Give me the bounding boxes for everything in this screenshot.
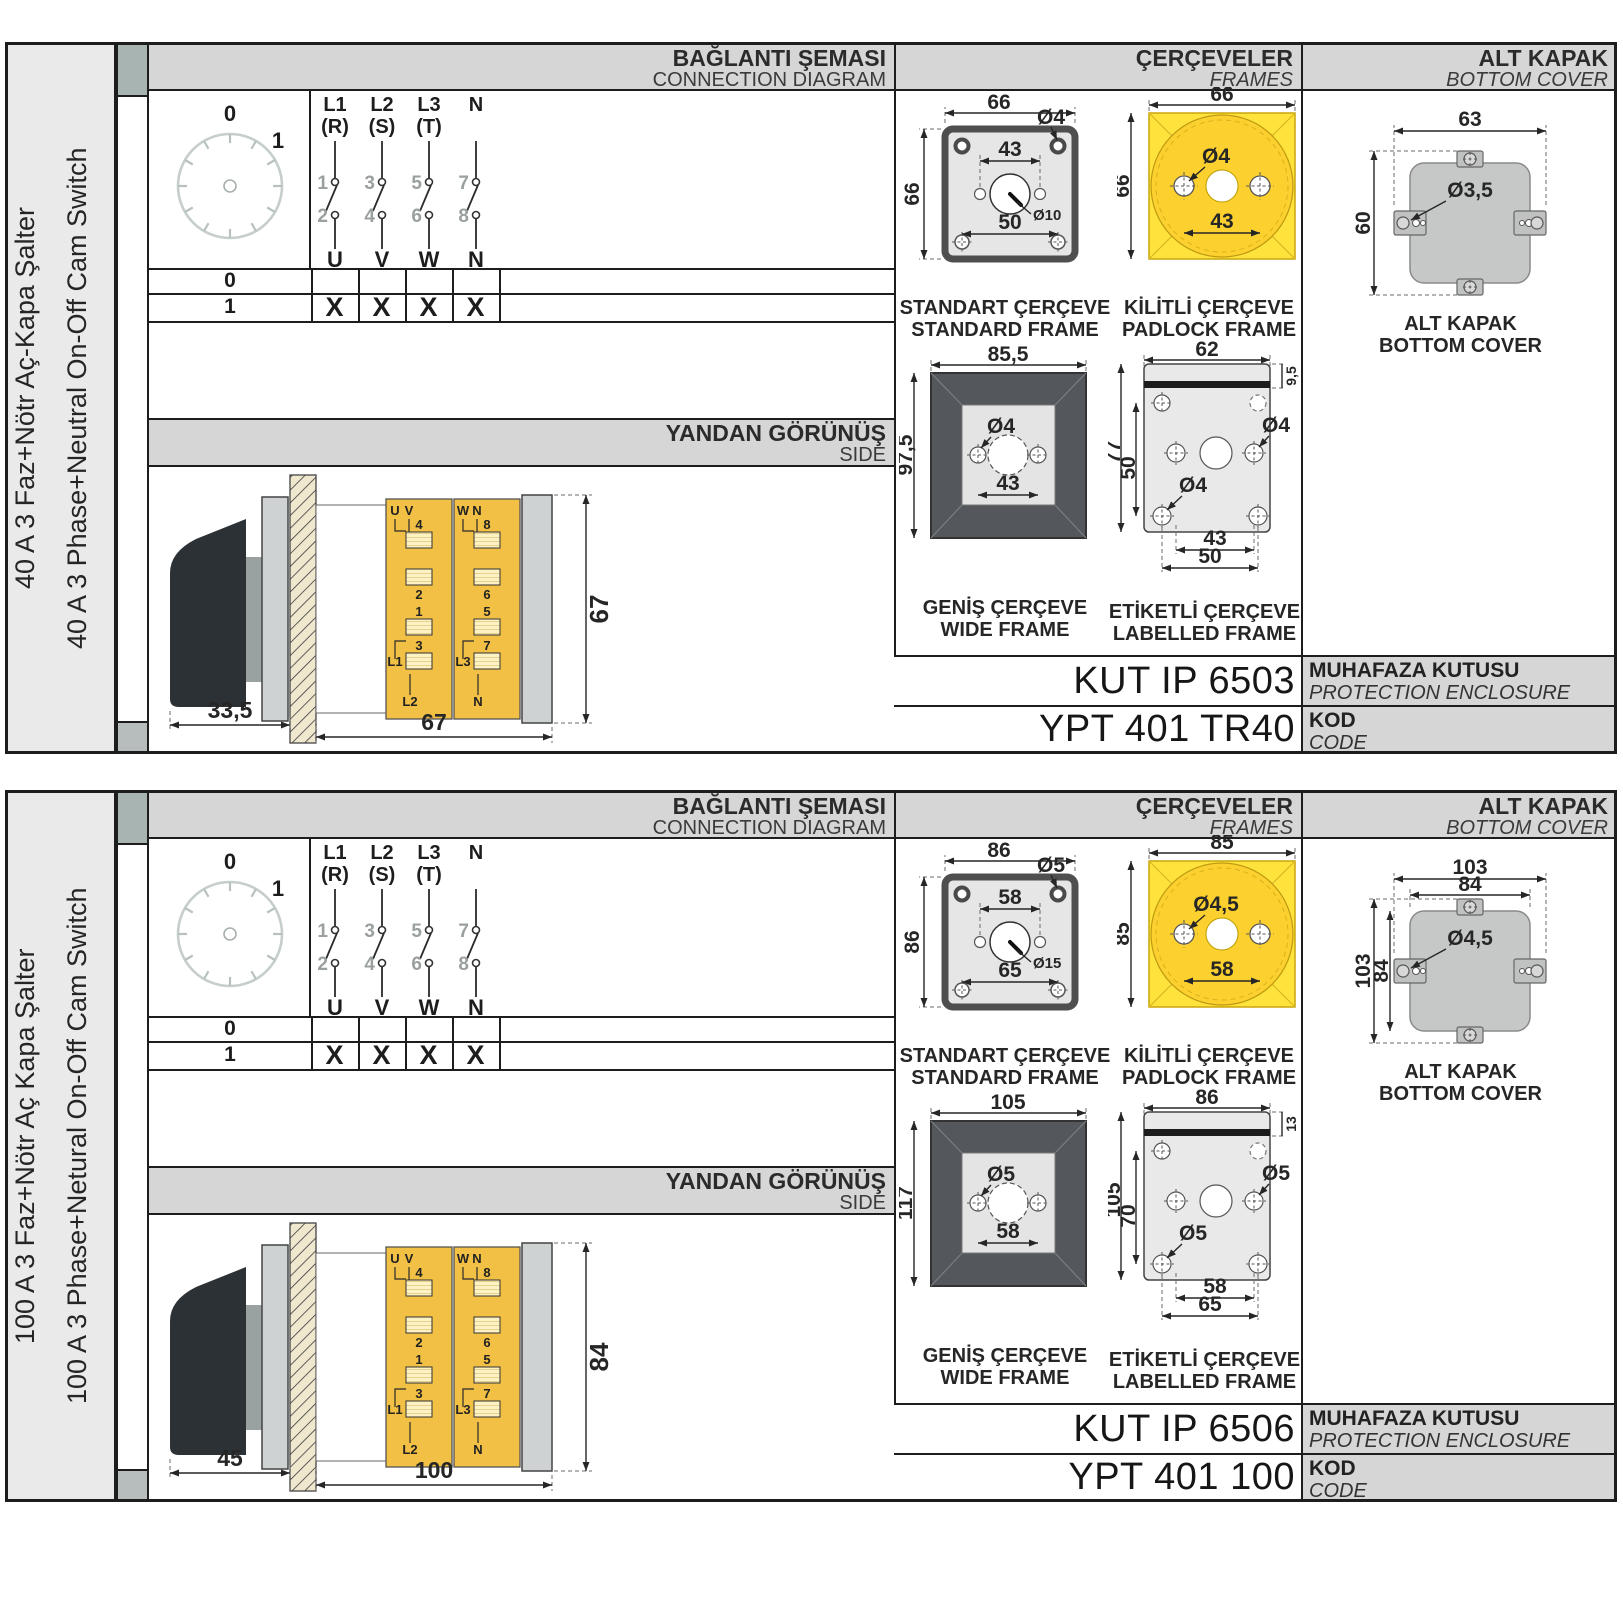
dim-label: 63: [1458, 108, 1481, 131]
section-header-cover: ALT KAPAK BOTTOM COVER: [1301, 45, 1616, 91]
caption-tr: STANDART ÇERÇEVE: [899, 1045, 1111, 1067]
terminal-number: 1: [415, 1352, 422, 1367]
terminal-label: U: [390, 1251, 399, 1266]
terminal-label: V: [405, 503, 414, 518]
section-header-connection: BAĞLANTI ŞEMASI CONNECTION DIAGRAM: [149, 45, 894, 91]
subsection-header-side: YANDAN GÖRÜNÜŞ SIDE: [149, 1166, 894, 1215]
dim-label: 84: [1370, 959, 1393, 983]
pole-L2: L2 (S) 3 4 V: [364, 842, 395, 1016]
mounting-plate: [262, 1245, 288, 1469]
pole-L3: L3 (T) 5 6 W: [411, 94, 441, 268]
dial-box: 0 1: [149, 839, 311, 1016]
terminal-number: 8: [458, 206, 469, 227]
label-en: PROTECTION ENCLOSURE: [1309, 1430, 1616, 1452]
center-hole: [1200, 1185, 1232, 1217]
dim-label: Ø5: [1262, 1162, 1290, 1185]
wide-frame-caption: GENİŞ ÇERÇEVE WIDE FRAME: [899, 597, 1111, 641]
product-code-value: YPT 401 TR40: [894, 705, 1301, 751]
terminal-label: W: [457, 1251, 470, 1266]
panel-plate-hatched: [290, 475, 316, 743]
caption-tr: ALT KAPAK: [1318, 313, 1603, 335]
table-mark: [311, 1016, 358, 1041]
table-mark: [405, 1016, 452, 1041]
pole-phase-label: (S): [369, 864, 396, 886]
terminal-number: 3: [364, 173, 375, 194]
dimension-left-outer: 105: [1108, 1112, 1125, 1280]
side-view-drawing: U V 4 2 1 3 L1 L2 W N 8 6 5 7: [158, 469, 738, 749]
header-cover-en: BOTTOM COVER: [1303, 818, 1608, 838]
center-hole: [1206, 918, 1238, 950]
caption-tr: ETİKETLİ ÇERÇEVE: [1108, 1349, 1301, 1371]
table-mark: [452, 1016, 499, 1041]
dim-label: 105: [990, 1093, 1025, 1114]
table-line: [499, 268, 501, 321]
terminal-label: L2: [402, 694, 417, 709]
dim-label: Ø4: [1037, 106, 1065, 129]
dimension-hole-top: Ø5: [1259, 1162, 1290, 1195]
cover-tab-right: [1514, 959, 1546, 983]
switch-body: U V 4 2 1 3 L1 L2 W N 8 6 5 7: [386, 499, 520, 719]
dim-label: Ø4: [987, 415, 1015, 438]
label-tr: MUHAFAZA KUTUSU: [1309, 659, 1616, 682]
product-panel: 100 A 3 Faz+Nötr Aç Kapa Şalter 100 A 3 …: [5, 790, 1617, 1502]
labelled-frame-drawing: 86 13 105 70 Ø5 Ø5 58: [1108, 1088, 1301, 1346]
side-hole: [975, 189, 986, 200]
pole-line-label: N: [469, 94, 483, 116]
dimension-height: 84: [554, 1243, 614, 1471]
standard-frame-drawing: 66 Ø4 66 43 Ø10 50: [899, 93, 1111, 295]
position-dial-drawing: 0 1: [149, 839, 309, 1014]
column-divider: [894, 91, 896, 751]
dial-ring: [178, 882, 282, 986]
enclosure-code-label: MUHAFAZA KUTUSU PROTECTION ENCLOSURE: [1301, 1403, 1616, 1453]
section-header-frames: ÇERÇEVELER FRAMES: [894, 45, 1301, 91]
table-mark: X: [358, 293, 405, 321]
bottom-cover-drawing: 63 60 Ø3,5: [1318, 105, 1603, 310]
header-connection-tr: BAĞLANTI ŞEMASI: [149, 47, 886, 70]
side-view-drawing: U V 4 2 1 3 L1 L2 W N 8 6 5 7: [158, 1217, 738, 1497]
product-panel: 40 A 3 Faz+Nötr Aç-Kapa Şalter 40 A 3 Ph…: [5, 42, 1617, 754]
label-tr: KOD: [1309, 1457, 1616, 1480]
shaft-housing: [316, 1253, 386, 1461]
dial-position-on: 1: [272, 876, 284, 901]
dim-label: Ø4: [1202, 145, 1230, 168]
terminal-label: U: [390, 503, 399, 518]
column-divider: [1301, 839, 1303, 1403]
dim-label: 66: [901, 182, 924, 205]
dim-label: 43: [998, 138, 1021, 161]
corner-hole: [956, 888, 969, 901]
table-mark: X: [358, 1041, 405, 1069]
center-hole: [1206, 170, 1238, 202]
terminal-number: 6: [411, 206, 422, 227]
caption-tr: KİLİTLİ ÇERÇEVE: [1117, 297, 1301, 319]
terminal-number: 4: [364, 954, 375, 975]
column-divider: [1301, 91, 1303, 655]
pole-out-label: N: [468, 247, 484, 268]
header-cover-en: BOTTOM COVER: [1303, 70, 1608, 90]
pole-phase-label: (R): [321, 864, 349, 886]
cover-tab-bottom: [1457, 1027, 1483, 1043]
pole-N: N 7 8 N: [458, 842, 484, 1016]
terminal-number: 8: [458, 954, 469, 975]
standard-frame-drawing: 86 Ø5 86 58 Ø15 65: [899, 841, 1111, 1043]
label-en: PROTECTION ENCLOSURE: [1309, 682, 1616, 704]
standard-frame-caption: STANDART ÇERÇEVE STANDARD FRAME: [899, 297, 1111, 341]
dim-label: 66: [1117, 174, 1134, 197]
dim-label: 33,5: [208, 697, 253, 723]
caption-tr: GENİŞ ÇERÇEVE: [899, 597, 1111, 619]
terminal-number: 3: [415, 1386, 422, 1401]
product-name-en: 40 A 3 Phase+Neutral On-Off Cam Switch: [62, 45, 112, 751]
labelled-frame-drawing: 62 9,5 77 50 Ø4 Ø4 43: [1108, 340, 1301, 598]
product-code-value: YPT 401 100: [894, 1453, 1301, 1499]
dimension-top: 85,5: [931, 345, 1086, 371]
terminal-number: 7: [458, 921, 469, 942]
table-mark: X: [452, 293, 499, 321]
strip-top-square: [118, 793, 147, 845]
dim-label: Ø5: [1179, 1222, 1207, 1245]
panel-plate-hatched: [290, 1223, 316, 1491]
dim-label: 50: [998, 211, 1021, 234]
wide-frame-caption: GENİŞ ÇERÇEVE WIDE FRAME: [899, 1345, 1111, 1389]
dim-label: 66: [987, 93, 1010, 114]
terminal-number: 1: [317, 921, 328, 942]
side-title-tr: YANDAN GÖRÜNÜŞ: [149, 1170, 886, 1193]
dim-label: Ø5: [987, 1163, 1015, 1186]
pole-line-label: L3: [417, 94, 440, 116]
dimension-strip: 9,5: [1272, 364, 1299, 388]
dim-label: Ø4,5: [1193, 893, 1239, 916]
dimension-left: 117: [899, 1121, 917, 1286]
dimension-strip: 13: [1272, 1112, 1299, 1136]
header-connection-en: CONNECTION DIAGRAM: [149, 818, 886, 838]
pole-line-label: L2: [370, 94, 393, 116]
dim-label: 85,5: [988, 345, 1029, 366]
terminal-number: 2: [317, 954, 328, 975]
dim-label: 85: [1210, 835, 1234, 854]
table-mark: X: [311, 1041, 358, 1069]
end-plate: [522, 1243, 552, 1471]
dim-label: 65: [998, 959, 1022, 982]
dimension-left: 66: [1117, 113, 1134, 259]
cover-tab-top: [1457, 899, 1483, 915]
switch-body: U V 4 2 1 3 L1 L2 W N 8 6 5 7: [386, 1247, 520, 1467]
table-row-label-on: 1: [149, 293, 311, 321]
header-cover-tr: ALT KAPAK: [1303, 795, 1608, 818]
dimension-left: 86: [901, 877, 941, 1007]
shaft-housing: [316, 505, 386, 713]
dimension-top: 85: [1149, 835, 1295, 859]
section-header-cover: ALT KAPAK BOTTOM COVER: [1301, 793, 1616, 839]
table-line: [149, 1069, 894, 1071]
terminal-label: N: [473, 1442, 482, 1457]
header-connection-tr: BAĞLANTI ŞEMASI: [149, 795, 886, 818]
caption-tr: STANDART ÇERÇEVE: [899, 297, 1111, 319]
terminal-number: 2: [415, 1335, 422, 1350]
dim-label: 100: [415, 1457, 453, 1483]
caption-tr: GENİŞ ÇERÇEVE: [899, 1345, 1111, 1367]
pole-out-label: W: [419, 995, 440, 1016]
product-sidebar: 100 A 3 Faz+Nötr Aç Kapa Şalter 100 A 3 …: [8, 793, 116, 1499]
column-divider: [894, 839, 896, 1499]
label-strip: [1144, 1129, 1270, 1136]
padlock-frame-caption: KİLİTLİ ÇERÇEVE PADLOCK FRAME: [1117, 1045, 1301, 1089]
caption-en: LABELLED FRAME: [1108, 1371, 1301, 1393]
side-hole: [1035, 937, 1046, 948]
dim-label: Ø15: [1033, 955, 1061, 972]
dim-label: 13: [1283, 1116, 1299, 1132]
dim-label: 65: [1198, 1293, 1222, 1316]
terminal-number: 6: [483, 587, 490, 602]
caption-tr: KİLİTLİ ÇERÇEVE: [1117, 1045, 1301, 1067]
label-en: CODE: [1309, 732, 1616, 754]
terminal-label: N: [472, 1251, 481, 1266]
label-tr: KOD: [1309, 709, 1616, 732]
table-mark: [311, 268, 358, 293]
position-dial-drawing: 0 1: [149, 91, 309, 266]
corner-hole: [956, 140, 969, 153]
dimension-hole-top: Ø4: [1259, 414, 1290, 447]
dim-label: 67: [421, 709, 447, 735]
cover-tab-top: [1457, 151, 1483, 167]
terminal-number: 2: [317, 206, 328, 227]
end-plate: [522, 495, 552, 723]
wide-frame-drawing: Ø4 85,5 97,5 43: [899, 345, 1111, 595]
product-name-tr: 100 A 3 Faz+Nötr Aç Kapa Şalter: [10, 793, 60, 1499]
table-row-label-off: 0: [149, 1016, 311, 1041]
dimension-left: 97,5: [899, 373, 917, 538]
bottom-cover-caption: ALT KAPAK BOTTOM COVER: [1318, 1061, 1603, 1105]
dim-label: 43: [1210, 210, 1233, 233]
bottom-cover-caption: ALT KAPAK BOTTOM COVER: [1318, 313, 1603, 357]
terminal-number: 5: [483, 604, 490, 619]
pole-L1: L1 (R) 1 2 U: [317, 842, 348, 1016]
dim-label: Ø4,5: [1447, 927, 1493, 950]
header-frames-tr: ÇERÇEVELER: [896, 795, 1293, 818]
switch-handle: [170, 1267, 262, 1455]
enclosure-code-value: KUT IP 6503: [894, 655, 1301, 705]
terminal-number: 6: [411, 954, 422, 975]
dim-label: 58: [1210, 958, 1234, 981]
terminal-number: 6: [483, 1335, 490, 1350]
center-hole: [1200, 437, 1232, 469]
table-row-label-off: 0: [149, 268, 311, 293]
dimension-top: 105: [931, 1093, 1086, 1119]
table-mark: [452, 268, 499, 293]
table-mark: [358, 1016, 405, 1041]
caption-en: PADLOCK FRAME: [1117, 1067, 1301, 1089]
dial-position-off: 0: [224, 101, 236, 126]
terminal-number: 8: [483, 1265, 490, 1280]
pole-phase-label: (T): [416, 864, 442, 886]
dim-label: 58: [998, 886, 1022, 909]
pole-out-label: V: [375, 995, 390, 1016]
product-name-en: 100 A 3 Phase+Netural On-Off Cam Switch: [62, 793, 112, 1499]
pole-line-label: N: [469, 842, 483, 864]
dial-position-off: 0: [224, 849, 236, 874]
terminal-number: 3: [415, 638, 422, 653]
dimension-height: 67: [554, 495, 614, 723]
dim-label: 43: [996, 472, 1019, 495]
mount-hole: [1250, 395, 1266, 411]
terminal-number: 5: [483, 1352, 490, 1367]
padlock-frame-drawing: 85 85 Ø4,5 58: [1117, 835, 1301, 1043]
dim-label: Ø10: [1033, 207, 1061, 224]
header-cover-tr: ALT KAPAK: [1303, 47, 1608, 70]
padlock-frame-caption: KİLİTLİ ÇERÇEVE PADLOCK FRAME: [1117, 297, 1301, 341]
dim-label: 66: [1210, 87, 1233, 106]
side-hole: [975, 937, 986, 948]
dim-label: 70: [1117, 1204, 1140, 1227]
terminal-number: 1: [415, 604, 422, 619]
mounting-plate: [262, 497, 288, 721]
corner-hole: [1052, 888, 1065, 901]
side-hole: [1035, 189, 1046, 200]
dim-label: 84: [1458, 873, 1482, 896]
pole-out-label: V: [375, 247, 390, 268]
terminal-number: 1: [317, 173, 328, 194]
caption-en: STANDARD FRAME: [899, 1067, 1111, 1089]
table-mark: X: [311, 293, 358, 321]
terminal-number: 4: [415, 1265, 423, 1280]
terminal-number: 8: [483, 517, 490, 532]
table-mark: X: [452, 1041, 499, 1069]
dim-label: 45: [217, 1445, 243, 1471]
caption-en: BOTTOM COVER: [1318, 1083, 1603, 1105]
terminal-label: W: [457, 503, 470, 518]
dim-label: 9,5: [1283, 366, 1299, 386]
header-connection-en: CONNECTION DIAGRAM: [149, 70, 886, 90]
labelled-frame-caption: ETİKETLİ ÇERÇEVE LABELLED FRAME: [1108, 1349, 1301, 1393]
dim-label: 62: [1195, 340, 1218, 361]
terminal-label: L2: [402, 1442, 417, 1457]
dim-label: 86: [1195, 1088, 1218, 1109]
binder-strip: [116, 45, 149, 751]
pole-L2: L2 (S) 3 4 V: [364, 94, 395, 268]
pole-out-label: W: [419, 247, 440, 268]
dim-label: 67: [584, 595, 614, 624]
dim-label: 50: [1117, 456, 1140, 479]
subsection-header-side: YANDAN GÖRÜNÜŞ SIDE: [149, 418, 894, 467]
caption-en: PADLOCK FRAME: [1117, 319, 1301, 341]
pole-out-label: U: [327, 247, 343, 268]
product-code-label: KOD CODE: [1301, 705, 1616, 751]
pole-line-label: L2: [370, 842, 393, 864]
terminal-label: N: [473, 694, 482, 709]
dim-label: 86: [901, 930, 924, 953]
catalog-page: 40 A 3 Faz+Nötr Aç-Kapa Şalter 40 A 3 Ph…: [0, 0, 1623, 1623]
terminal-number: 7: [483, 638, 490, 653]
dimension-top: 86: [1144, 1088, 1270, 1114]
caption-en: WIDE FRAME: [899, 1367, 1111, 1389]
strip-bottom-square: [118, 721, 147, 751]
switch-contacts-drawing: L1 (R) 1 2 U L2 (S) 3 4 V L3 (T): [311, 839, 551, 1016]
dim-label: Ø4: [1262, 414, 1290, 437]
corner-hole: [1052, 140, 1065, 153]
dim-label: 50: [1198, 545, 1221, 568]
table-mark: X: [405, 293, 452, 321]
pole-line-label: L3: [417, 842, 440, 864]
strip-top-square: [118, 45, 147, 97]
binder-strip: [116, 793, 149, 1499]
side-title-en: SIDE: [149, 445, 886, 465]
table-mark: X: [405, 1041, 452, 1069]
pole-phase-label: (R): [321, 116, 349, 138]
section-header-connection: BAĞLANTI ŞEMASI CONNECTION DIAGRAM: [149, 793, 894, 839]
strip-bottom-square: [118, 1469, 147, 1499]
table-mark: [358, 268, 405, 293]
dial-position-on: 1: [272, 128, 284, 153]
product-sidebar: 40 A 3 Faz+Nötr Aç-Kapa Şalter 40 A 3 Ph…: [8, 45, 116, 751]
table-line: [149, 321, 894, 323]
terminal-number: 3: [364, 921, 375, 942]
label-en: CODE: [1309, 1480, 1616, 1502]
section-header-frames: ÇERÇEVELER FRAMES: [894, 793, 1301, 839]
terminal-number: 4: [364, 206, 375, 227]
pole-L3: L3 (T) 5 6 W: [411, 842, 441, 1016]
bottom-cover-drawing: 103 103 84 84 Ø4,5: [1318, 853, 1603, 1058]
dimension-top: 66: [1149, 87, 1295, 111]
caption-en: LABELLED FRAME: [1108, 623, 1301, 645]
center-hole: [988, 435, 1028, 475]
pole-phase-label: (S): [369, 116, 396, 138]
pole-phase-label: (T): [416, 116, 442, 138]
standard-frame-caption: STANDART ÇERÇEVE STANDARD FRAME: [899, 1045, 1111, 1089]
terminal-number: 2: [415, 587, 422, 602]
caption-tr: ALT KAPAK: [1318, 1061, 1603, 1083]
caption-en: WIDE FRAME: [899, 619, 1111, 641]
table-line: [499, 1016, 501, 1069]
dim-label: 58: [996, 1220, 1020, 1243]
dim-label: 86: [987, 841, 1010, 862]
switch-handle: [170, 519, 262, 707]
dial-ring: [178, 134, 282, 238]
pole-L1: L1 (R) 1 2 U: [317, 94, 348, 268]
pole-N: N 7 8 N: [458, 94, 484, 268]
pole-line-label: L1: [323, 94, 346, 116]
labelled-frame-caption: ETİKETLİ ÇERÇEVE LABELLED FRAME: [1108, 601, 1301, 645]
terminal-number: 7: [483, 1386, 490, 1401]
pole-out-label: U: [327, 995, 343, 1016]
terminal-number: 5: [411, 173, 422, 194]
caption-tr: ETİKETLİ ÇERÇEVE: [1108, 601, 1301, 623]
enclosure-code-label: MUHAFAZA KUTUSU PROTECTION ENCLOSURE: [1301, 655, 1616, 705]
dim-label: Ø3,5: [1447, 179, 1493, 202]
mount-hole: [1250, 1143, 1266, 1159]
center-hole: [988, 1183, 1028, 1223]
product-name-tr: 40 A 3 Faz+Nötr Aç-Kapa Şalter: [10, 45, 60, 751]
dim-label: 84: [584, 1342, 614, 1371]
caption-en: BOTTOM COVER: [1318, 335, 1603, 357]
dim-label: 97,5: [899, 434, 917, 475]
header-frames-tr: ÇERÇEVELER: [896, 47, 1293, 70]
side-title-tr: YANDAN GÖRÜNÜŞ: [149, 422, 886, 445]
dim-label: 85: [1117, 922, 1134, 946]
padlock-frame-drawing: 66 66 Ø4 43: [1117, 87, 1301, 295]
table-row-label-on: 1: [149, 1041, 311, 1069]
enclosure-code-value: KUT IP 6506: [894, 1403, 1301, 1453]
side-title-en: SIDE: [149, 1193, 886, 1213]
dimension-top: 62: [1144, 340, 1270, 366]
terminal-number: 7: [458, 173, 469, 194]
cover-tab-right: [1514, 211, 1546, 235]
dimension-left-outer: 77: [1108, 364, 1125, 532]
table-mark: [405, 268, 452, 293]
dim-label: Ø4: [1179, 474, 1207, 497]
terminal-number: 4: [415, 517, 423, 532]
product-code-label: KOD CODE: [1301, 1453, 1616, 1499]
